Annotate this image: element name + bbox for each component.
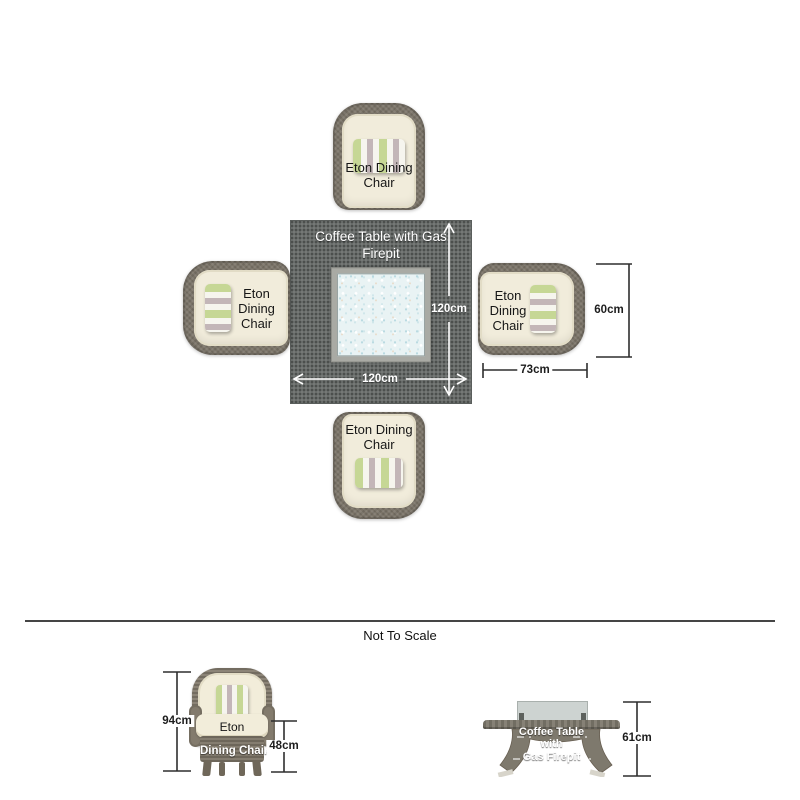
table-height-dimension (623, 702, 651, 776)
chair-height-dimension (163, 672, 191, 771)
chair-label: Eton Dining Chair (333, 422, 425, 452)
divider-line (25, 620, 775, 622)
coffee-table-plan: Coffee Table with Gas Firepit (290, 220, 472, 404)
dining-chair-top: Eton Dining Chair (333, 103, 425, 210)
dining-chair-right: Eton Dining Chair (478, 263, 585, 355)
chair-depth-label: 73cm (517, 364, 552, 376)
chair-leg (239, 762, 245, 776)
firepit-frame (331, 267, 431, 362)
chair-elevation-base: Dining Chair (200, 736, 264, 762)
chair-leg (219, 762, 225, 776)
chair-elevation-seat: Eton (196, 714, 268, 738)
dining-chair-bottom: Eton Dining Chair (333, 412, 425, 519)
chair-width-dimension (596, 264, 632, 357)
chair-elevation: Eton Dining Chair (192, 668, 272, 777)
firepit-glass-screen (517, 701, 588, 721)
chair-width-label: 60cm (591, 304, 626, 316)
chair-leg (202, 760, 212, 776)
table-height-label: 61cm (619, 732, 654, 744)
chair-label: Eton Dining Chair (482, 288, 534, 333)
not-to-scale-note: Not To Scale (0, 628, 800, 643)
dining-chair-left: Eton Dining Chair (183, 261, 290, 355)
table-elevation-label-line1: Coffee Table (483, 726, 620, 738)
table-elevation: Coffee Table with Gas Firepit (483, 700, 620, 777)
striped-pillow (355, 458, 403, 488)
chair-label: Eton Dining Chair (227, 286, 286, 331)
coffee-table-label: Coffee Table with Gas Firepit (291, 228, 471, 262)
chair-leg (252, 760, 262, 776)
table-elevation-label-line3: Gas Firepit (483, 751, 620, 763)
firepit-glass (337, 273, 425, 356)
chair-depth-dimension (483, 363, 587, 378)
table-elevation-label-line2: with (483, 738, 620, 750)
chair-label: Eton Dining Chair (333, 160, 425, 190)
furniture-layout-diagram: Coffee Table with Gas Firepit Eton Dinin… (0, 0, 800, 800)
